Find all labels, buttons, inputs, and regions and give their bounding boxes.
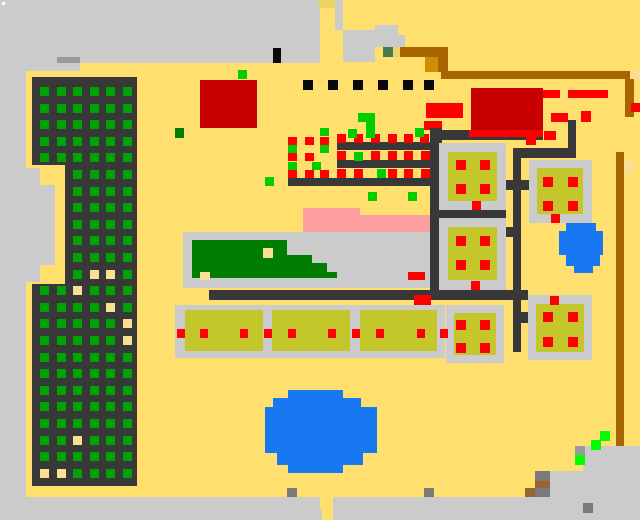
pond-east xyxy=(566,255,600,266)
red-building-east[interactable] xyxy=(471,88,543,135)
berry-patch-red xyxy=(305,170,314,178)
crop-cell xyxy=(123,353,132,362)
crop-cell xyxy=(123,170,132,179)
trellis-berry-red xyxy=(404,169,413,178)
pond-south xyxy=(273,398,361,407)
crop-cell xyxy=(57,137,66,146)
crop-cell xyxy=(123,386,132,395)
crop-cell xyxy=(123,369,132,378)
crop-cell xyxy=(40,303,49,312)
barn-window-dot xyxy=(568,312,578,322)
crop-cell xyxy=(106,220,115,229)
crop-cell xyxy=(90,253,99,262)
crop-cell xyxy=(40,153,49,162)
red-mark xyxy=(581,111,591,122)
grass-gap xyxy=(200,272,210,280)
barn-window-dot xyxy=(480,260,490,270)
crop-cell xyxy=(73,137,82,146)
fence-post-dot xyxy=(353,80,363,90)
red-door-east-building[interactable] xyxy=(526,137,536,145)
path-stub xyxy=(521,312,528,323)
crop-cell xyxy=(90,87,99,96)
red-item-edge xyxy=(631,103,640,112)
grass-field xyxy=(312,263,327,278)
pond-east xyxy=(566,223,596,231)
crop-cell xyxy=(106,286,115,295)
crop-cell xyxy=(90,469,99,478)
crop-cell-empty xyxy=(123,336,132,345)
cliff-tile xyxy=(393,47,400,57)
crop-cell xyxy=(106,170,115,179)
fence-post-dot xyxy=(424,80,434,90)
crop-cell xyxy=(90,386,99,395)
red-bar xyxy=(568,90,608,98)
crop-cell xyxy=(90,153,99,162)
crop-cell xyxy=(90,236,99,245)
pond-east xyxy=(559,231,603,255)
fence-post-dot xyxy=(303,80,313,90)
wild-plant-green xyxy=(368,192,377,201)
crop-cell xyxy=(90,286,99,295)
crop-cell xyxy=(90,104,99,113)
crop-cell xyxy=(106,336,115,345)
red-bar xyxy=(426,103,463,118)
crop-cell xyxy=(90,137,99,146)
trellis-berry-green xyxy=(377,169,386,178)
crop-cell xyxy=(73,170,82,179)
crop-cell xyxy=(40,87,49,96)
offmap-blob xyxy=(375,25,398,47)
crop-cell xyxy=(106,353,115,362)
crop-cell xyxy=(123,469,132,478)
red-bar xyxy=(543,90,560,98)
crate-gray xyxy=(535,471,550,481)
barn-window-dot xyxy=(456,184,466,194)
offmap-top-step xyxy=(26,63,80,71)
barn-b-door[interactable] xyxy=(471,281,480,290)
barn-window-dot xyxy=(456,236,466,246)
pond-south xyxy=(288,390,343,398)
stone-dot xyxy=(424,488,434,497)
south-exit-path xyxy=(320,497,333,509)
crop-cell xyxy=(90,203,99,212)
crop-cell xyxy=(90,452,99,461)
crop-cell xyxy=(73,104,82,113)
crop-cell xyxy=(40,436,49,445)
crop-cell xyxy=(106,187,115,196)
pond-south xyxy=(265,407,377,453)
crop-cell xyxy=(40,120,49,129)
shed-row-dot xyxy=(417,329,425,338)
pond-south xyxy=(288,465,343,473)
berry-patch-red xyxy=(288,170,297,178)
crop-cell-empty xyxy=(73,286,82,295)
crop-cell xyxy=(123,270,132,279)
grass-field xyxy=(287,255,312,278)
pond-east xyxy=(574,266,593,273)
crop-cell xyxy=(73,319,82,328)
shed-row-dot xyxy=(177,329,185,338)
barn-a-door[interactable] xyxy=(472,201,481,210)
berry-patch-green xyxy=(288,162,297,170)
crop-cell xyxy=(57,336,66,345)
red-mark xyxy=(544,131,556,140)
trellis-berry-red xyxy=(421,151,430,160)
barn-b-roof xyxy=(448,227,497,280)
crop-cell xyxy=(73,402,82,411)
barn-window-dot xyxy=(568,177,578,187)
forage-lime-dot xyxy=(575,455,585,465)
barn-window-dot xyxy=(456,343,466,353)
crop-cell xyxy=(57,319,66,328)
barn-window-dot xyxy=(480,160,490,170)
trellis-berry-red xyxy=(354,169,363,178)
crop-cell xyxy=(73,187,82,196)
berry-patch-green xyxy=(320,145,329,153)
crop-cell xyxy=(106,319,115,328)
shed-row-dot xyxy=(376,329,384,338)
barn-window-dot xyxy=(480,320,490,330)
crop-cell xyxy=(123,286,132,295)
crop-cell xyxy=(106,236,115,245)
trellis-bar xyxy=(288,178,433,186)
crop-cell xyxy=(73,303,82,312)
crop-cell xyxy=(106,104,115,113)
trellis-berry-red xyxy=(421,169,430,178)
crop-cell xyxy=(73,153,82,162)
crop-cell xyxy=(106,203,115,212)
crop-cell xyxy=(106,436,115,445)
crop-cell xyxy=(90,402,99,411)
fence-brown-top xyxy=(400,47,448,57)
crate-wood xyxy=(525,488,535,497)
wild-plant-green xyxy=(265,177,274,186)
shed-row-dot xyxy=(328,329,336,338)
barn-window-dot xyxy=(543,312,553,322)
farm-map[interactable] xyxy=(0,0,640,520)
crop-cell xyxy=(90,220,99,229)
south-exit-path xyxy=(322,509,333,520)
fence-brown-elbow xyxy=(438,57,448,72)
crop-cell xyxy=(123,220,132,229)
crop-cell xyxy=(90,369,99,378)
berry-patch-green xyxy=(288,145,297,153)
stone-dot xyxy=(583,503,593,513)
crop-cell-empty xyxy=(73,436,82,445)
cliff-bump-left xyxy=(0,168,40,282)
forage-lime-dot xyxy=(600,431,610,441)
barn-window-dot xyxy=(543,337,553,347)
crop-cell-empty xyxy=(57,469,66,478)
fence-post-dot xyxy=(378,80,388,90)
shed-row-dot xyxy=(440,329,448,338)
shed-long[interactable] xyxy=(185,310,263,351)
trellis-berry-red xyxy=(404,151,413,160)
crop-cell xyxy=(73,369,82,378)
crop-cell xyxy=(90,336,99,345)
crop-cell xyxy=(90,187,99,196)
crop-cell-empty xyxy=(90,270,99,279)
crop-cell xyxy=(73,120,82,129)
crop-cell-empty xyxy=(40,469,49,478)
crop-cell xyxy=(57,436,66,445)
berry-patch-red xyxy=(320,137,329,145)
red-building-west[interactable] xyxy=(200,80,257,128)
crop-cell xyxy=(106,419,115,428)
crop-cell xyxy=(106,153,115,162)
crop-cell xyxy=(40,353,49,362)
fence-brown-long xyxy=(441,71,640,79)
barn-c-door[interactable] xyxy=(551,214,560,223)
stone-dot xyxy=(287,488,297,497)
wild-plant-green xyxy=(415,128,424,137)
crop-cell xyxy=(40,369,49,378)
crop-cell xyxy=(90,436,99,445)
fence-gate-pale xyxy=(630,71,640,79)
crop-cell xyxy=(73,353,82,362)
shed-row-dot xyxy=(288,329,296,338)
crop-cell xyxy=(40,137,49,146)
offmap-top-sliver xyxy=(335,0,343,30)
path-stub xyxy=(506,227,513,237)
trellis-berry-red xyxy=(371,151,380,160)
offmap-top-left xyxy=(0,0,320,63)
west-gate xyxy=(57,57,80,63)
offmap-blob xyxy=(343,30,375,62)
trellis-berry-red xyxy=(337,134,346,143)
barn-window-dot xyxy=(480,184,490,194)
crop-cell xyxy=(123,120,132,129)
pond-south xyxy=(277,453,363,465)
berry-patch-red xyxy=(305,153,314,161)
crop-cell xyxy=(73,386,82,395)
crop-cell xyxy=(123,137,132,146)
crop-cell xyxy=(106,369,115,378)
crop-cell xyxy=(73,253,82,262)
crop-cell xyxy=(90,120,99,129)
shed-row-dot xyxy=(352,329,360,338)
red-mark xyxy=(408,272,425,280)
crop-cell xyxy=(106,87,115,96)
crop-cell xyxy=(40,336,49,345)
trellis-bar xyxy=(337,142,433,150)
shed-long[interactable] xyxy=(360,310,437,351)
crop-cell xyxy=(73,469,82,478)
berry-patch-red xyxy=(288,153,297,161)
trellis-berry-red xyxy=(388,151,397,160)
crop-cell-empty xyxy=(106,270,115,279)
crop-cell xyxy=(106,120,115,129)
crop-cell xyxy=(123,253,132,262)
border-left xyxy=(0,63,26,520)
bush-on-cliff xyxy=(383,47,393,57)
crop-cell xyxy=(106,402,115,411)
berry-patch-green xyxy=(320,128,329,136)
barn-window-dot xyxy=(568,201,578,211)
offmap-blob xyxy=(398,35,405,47)
fence-brown-right-b xyxy=(616,152,624,447)
barn-window-dot xyxy=(456,260,466,270)
crop-cell xyxy=(73,419,82,428)
crop-cell xyxy=(90,303,99,312)
crop-cell xyxy=(106,253,115,262)
red-strip-under-building xyxy=(469,130,543,137)
crop-cell xyxy=(123,303,132,312)
shed-row-dot xyxy=(264,329,272,338)
crop-cell xyxy=(123,87,132,96)
wild-plant-green xyxy=(348,129,357,138)
berry-patch-green xyxy=(312,162,321,170)
berry-patch-red xyxy=(288,137,297,145)
crop-cell xyxy=(57,286,66,295)
berry-patch-red xyxy=(320,170,329,178)
barn-window-dot xyxy=(543,177,553,187)
grass-gap xyxy=(263,248,273,258)
crop-cell xyxy=(123,402,132,411)
crop-cell xyxy=(90,353,99,362)
crop-cell xyxy=(40,402,49,411)
grass-field xyxy=(327,272,337,278)
crop-cell xyxy=(57,369,66,378)
trellis-berry-red xyxy=(404,134,413,143)
crop-cell xyxy=(40,419,49,428)
crop-cell xyxy=(40,452,49,461)
crop-cell xyxy=(73,236,82,245)
crop-cell xyxy=(123,419,132,428)
crop-cell xyxy=(57,452,66,461)
crop-cell xyxy=(57,386,66,395)
shed-row-dot xyxy=(240,329,248,338)
crop-cell xyxy=(57,120,66,129)
path-between-barns xyxy=(442,210,506,218)
crop-cell xyxy=(57,419,66,428)
fence-gate-pale xyxy=(624,160,634,174)
wild-plant-green xyxy=(408,192,417,201)
berry-patch-red xyxy=(305,137,314,145)
forage-lime-dot xyxy=(591,440,601,450)
crop-cell xyxy=(57,87,66,96)
barn-window-dot xyxy=(456,320,466,330)
crop-cell xyxy=(57,402,66,411)
fence-post-tall xyxy=(273,48,281,63)
crate-gray xyxy=(535,488,550,497)
crop-cell xyxy=(123,436,132,445)
wild-plant-green xyxy=(238,70,247,79)
path-main xyxy=(209,290,528,300)
crop-cell xyxy=(106,386,115,395)
crop-cell xyxy=(73,452,82,461)
crop-cell xyxy=(73,203,82,212)
crop-cell xyxy=(123,187,132,196)
crop-cell xyxy=(40,286,49,295)
red-mark xyxy=(414,295,431,305)
crop-cell-empty xyxy=(123,319,132,328)
crop-cell xyxy=(90,419,99,428)
trellis-berry-green xyxy=(354,152,363,161)
north-path-tile xyxy=(319,0,335,8)
crop-cell xyxy=(123,452,132,461)
shed-row-dot xyxy=(200,329,208,338)
barn-window-dot xyxy=(456,160,466,170)
crop-cell xyxy=(123,236,132,245)
barn-window-dot xyxy=(568,337,578,347)
crop-cell xyxy=(123,104,132,113)
crop-cell xyxy=(73,270,82,279)
crop-cell xyxy=(123,153,132,162)
crop-cell xyxy=(40,319,49,328)
barn-window-dot xyxy=(480,343,490,353)
path-cross xyxy=(513,148,576,158)
trellis-berry-red xyxy=(337,169,346,178)
wild-plant-green xyxy=(366,129,375,138)
cliff-bump-left xyxy=(40,185,55,265)
trellis-bar xyxy=(337,160,441,168)
crop-cell xyxy=(73,87,82,96)
crop-cell xyxy=(40,386,49,395)
crop-cell xyxy=(73,220,82,229)
trellis-berry-red xyxy=(337,151,346,160)
crop-cell xyxy=(90,170,99,179)
crop-cell xyxy=(57,153,66,162)
crop-cell xyxy=(57,104,66,113)
fence-post-dot xyxy=(328,80,338,90)
shed-long[interactable] xyxy=(272,310,350,351)
crop-cell xyxy=(106,137,115,146)
fence-post-dot xyxy=(403,80,413,90)
crop-cell xyxy=(57,303,66,312)
path-stub xyxy=(504,180,529,190)
trellis-berry-red xyxy=(388,169,397,178)
barn-e-door[interactable] xyxy=(550,296,559,305)
crop-cell xyxy=(90,319,99,328)
crop-cell xyxy=(57,353,66,362)
crop-cell-empty xyxy=(106,303,115,312)
crop-cell xyxy=(106,452,115,461)
crop-cell xyxy=(73,336,82,345)
crop-cell xyxy=(106,469,115,478)
trellis-berry-red xyxy=(388,134,397,143)
crop-cell xyxy=(40,104,49,113)
barn-window-dot xyxy=(543,201,553,211)
barn-window-dot xyxy=(480,236,490,246)
crop-cell xyxy=(123,203,132,212)
wild-plant-dark xyxy=(175,128,184,138)
red-mark xyxy=(551,113,568,122)
map-corner-dot xyxy=(2,2,5,5)
